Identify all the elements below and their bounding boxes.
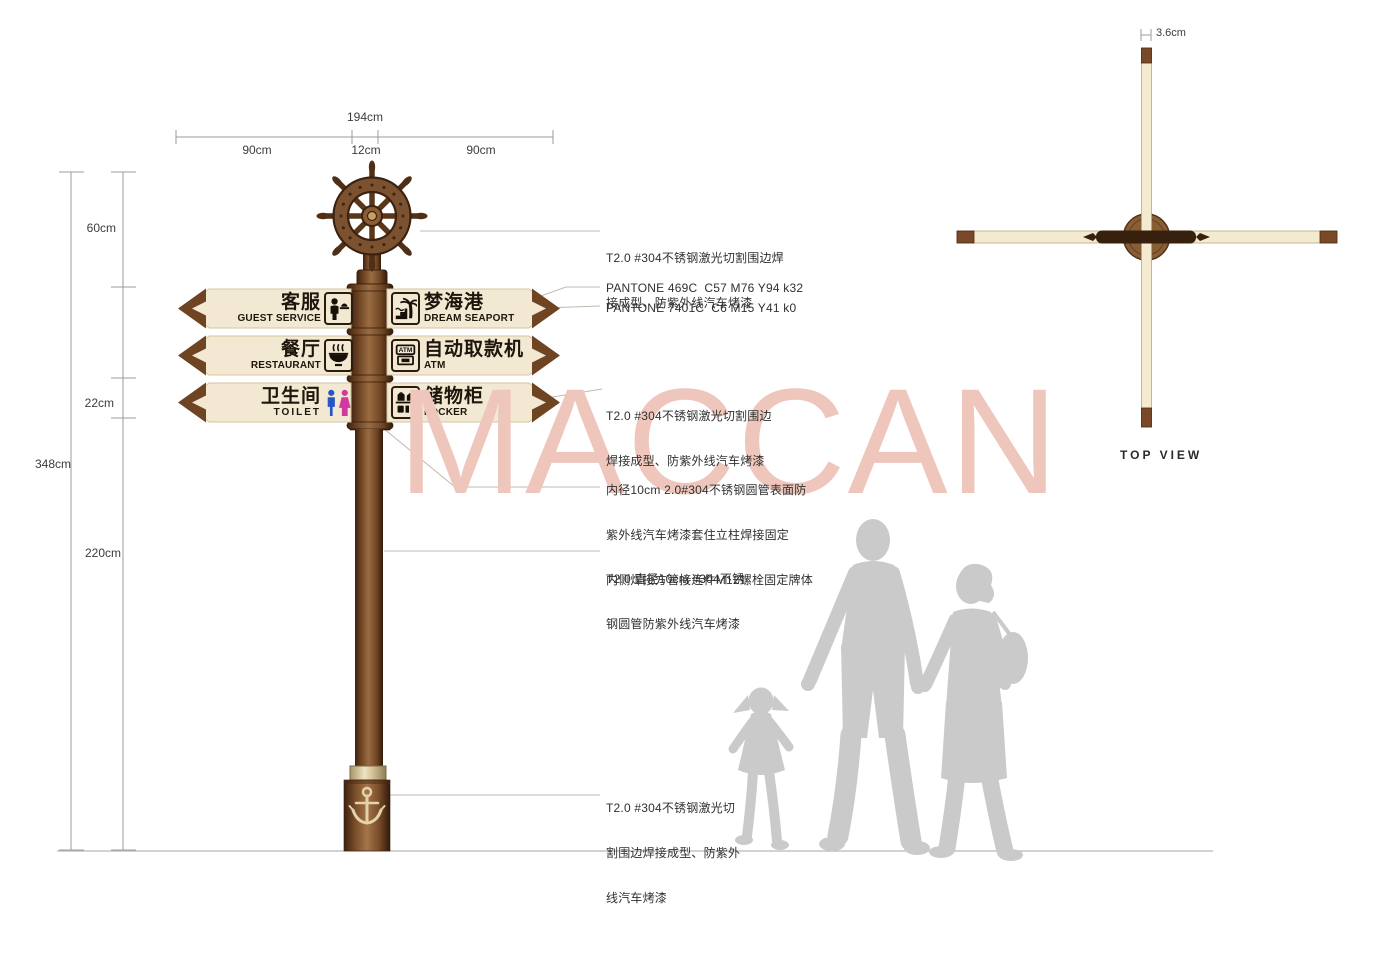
svg-text:ATM: ATM bbox=[399, 347, 413, 354]
sign-en: DREAM SEAPORT bbox=[424, 313, 514, 324]
toilet-icon bbox=[324, 386, 353, 419]
sign-en: GUEST SERVICE bbox=[237, 313, 321, 324]
dim-center-gap: 12cm bbox=[351, 143, 380, 157]
restaurant-icon bbox=[324, 339, 353, 372]
sign-toilet: 卫生间 TOILET bbox=[177, 381, 353, 424]
base-top-shadow bbox=[344, 780, 390, 784]
sign-guest-service: 客服 GUEST SERVICE bbox=[177, 287, 353, 330]
ship-wheel-icon bbox=[317, 161, 428, 272]
sign-zh: 客服 bbox=[237, 293, 321, 313]
seaport-icon bbox=[391, 292, 420, 325]
silhouette-man bbox=[801, 519, 930, 855]
pole-shaft bbox=[355, 429, 383, 768]
guest-service-icon bbox=[324, 292, 353, 325]
top-view-handle bbox=[1096, 231, 1196, 244]
annotation-pantone-cream: PANTONE 7401C C6 M15 Y41 k0 bbox=[606, 301, 796, 316]
base-collar bbox=[350, 766, 386, 780]
signage-design-sheet: 194cm 90cm 12cm 90cm 60cm 22cm 348cm 220… bbox=[0, 0, 1400, 961]
dim-right-arm: 90cm bbox=[466, 143, 495, 157]
annotation-pantone-brown: PANTONE 469C C57 M76 Y94 k32 bbox=[606, 281, 803, 296]
dim-topview-thickness: 3.6cm bbox=[1156, 27, 1186, 39]
dim-wheel-section: 60cm bbox=[87, 221, 116, 235]
man-icon bbox=[328, 389, 335, 415]
sign-en: RESTAURANT bbox=[251, 360, 321, 371]
annotation-pole: T2.0 直径10cm #304不锈 钢圆管防紫外线汽车烤漆 bbox=[606, 542, 744, 662]
annotation-base: T2.0 #304不锈钢激光切 割围边焊接成型、防紫外 线汽车烤漆 bbox=[606, 771, 740, 936]
sign-zh: 卫生间 bbox=[261, 387, 321, 407]
silhouette-woman bbox=[919, 564, 1028, 861]
sign-restaurant: 餐厅 RESTAURANT bbox=[177, 334, 353, 377]
sign-zh: 餐厅 bbox=[251, 340, 321, 360]
dim-total-height: 348cm bbox=[35, 457, 71, 471]
silhouette-girl bbox=[733, 688, 789, 851]
sign-dream-seaport: 梦海港 DREAM SEAPORT bbox=[385, 287, 561, 330]
dim-pole-height: 220cm bbox=[85, 546, 121, 560]
sign-en: TOILET bbox=[261, 407, 321, 418]
top-view-label: TOP VIEW bbox=[1120, 448, 1202, 462]
woman-icon bbox=[339, 389, 351, 415]
dim-overall-width: 194cm bbox=[347, 110, 383, 124]
pole-sleeve bbox=[350, 284, 390, 430]
dim-left-arm: 90cm bbox=[242, 143, 271, 157]
sign-zh: 梦海港 bbox=[424, 293, 514, 313]
dim-panel-height: 22cm bbox=[85, 396, 114, 410]
